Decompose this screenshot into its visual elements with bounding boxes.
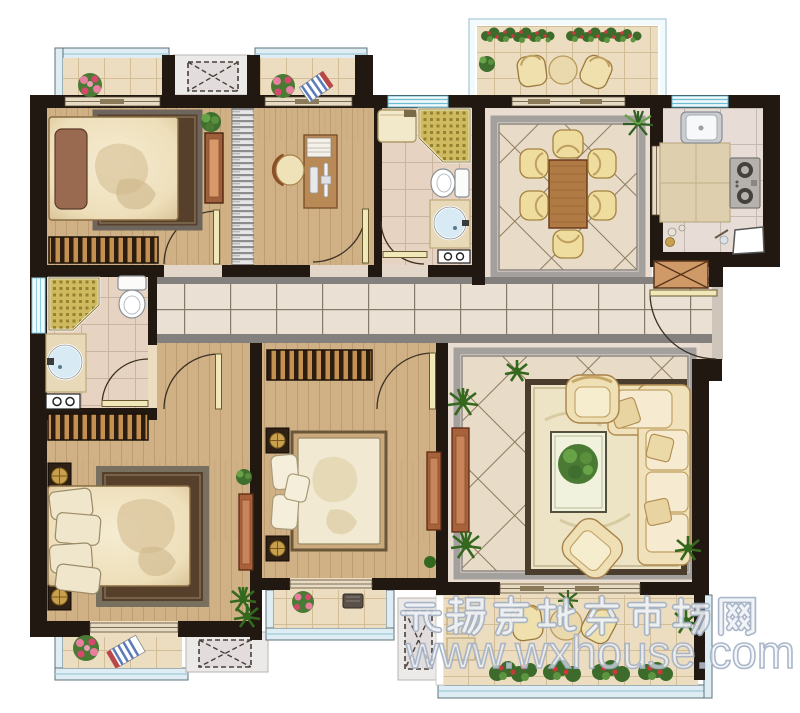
svg-text:www.wxhouse.com: www.wxhouse.com bbox=[405, 626, 795, 678]
